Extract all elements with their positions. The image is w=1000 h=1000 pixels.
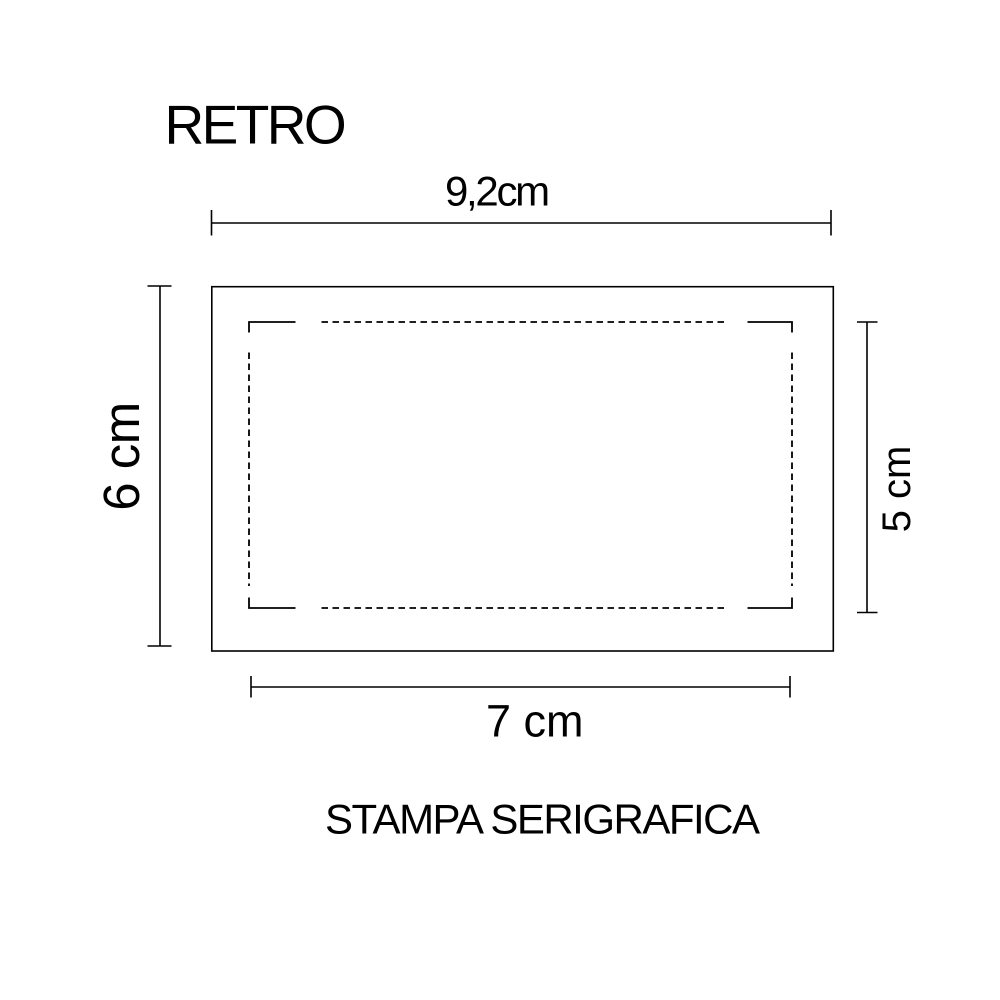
svg-text:9,2cm: 9,2cm — [445, 167, 548, 214]
svg-text:RETRO: RETRO — [165, 94, 345, 156]
svg-text:7 cm: 7 cm — [486, 695, 584, 746]
svg-text:5 cm: 5 cm — [875, 446, 919, 533]
svg-text:STAMPA SERIGRAFICA: STAMPA SERIGRAFICA — [325, 795, 760, 842]
svg-text:6 cm: 6 cm — [93, 402, 150, 511]
